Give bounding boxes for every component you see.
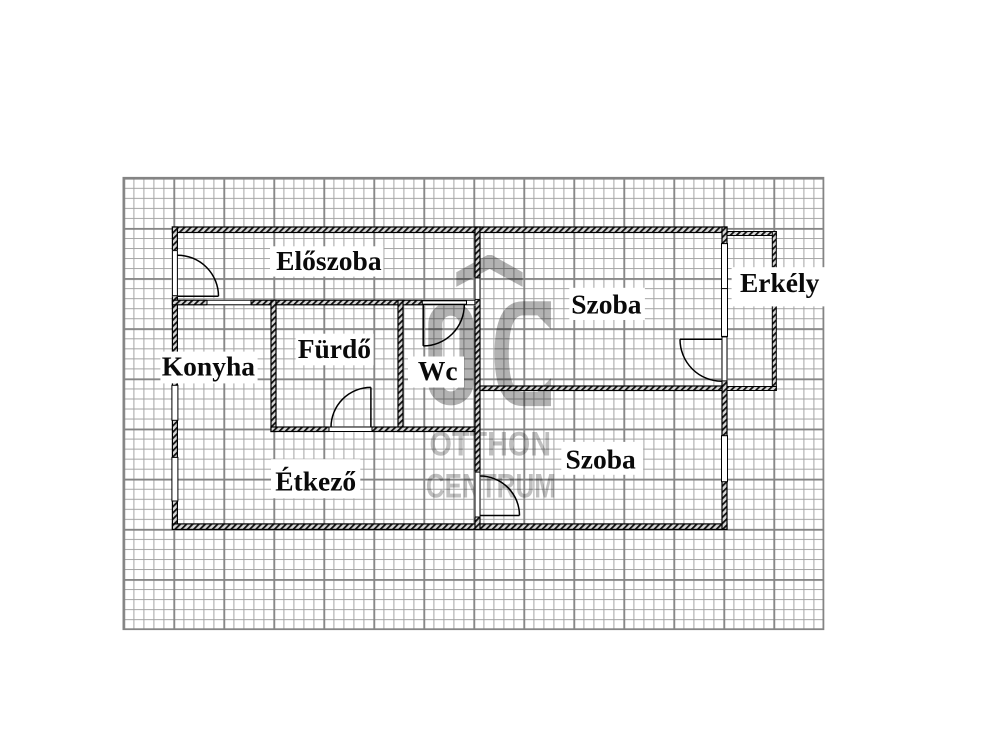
svg-text:Wc: Wc bbox=[418, 355, 458, 386]
svg-text:Fürdő: Fürdő bbox=[298, 333, 371, 364]
svg-text:CENTRUM: CENTRUM bbox=[426, 467, 556, 505]
svg-text:Konyha: Konyha bbox=[162, 351, 255, 382]
svg-text:Szoba: Szoba bbox=[565, 443, 636, 474]
svg-text:Étkező: Étkező bbox=[275, 465, 356, 496]
svg-text:Szoba: Szoba bbox=[571, 289, 642, 320]
svg-text:Erkély: Erkély bbox=[740, 267, 820, 298]
svg-text:Előszoba: Előszoba bbox=[276, 245, 382, 276]
